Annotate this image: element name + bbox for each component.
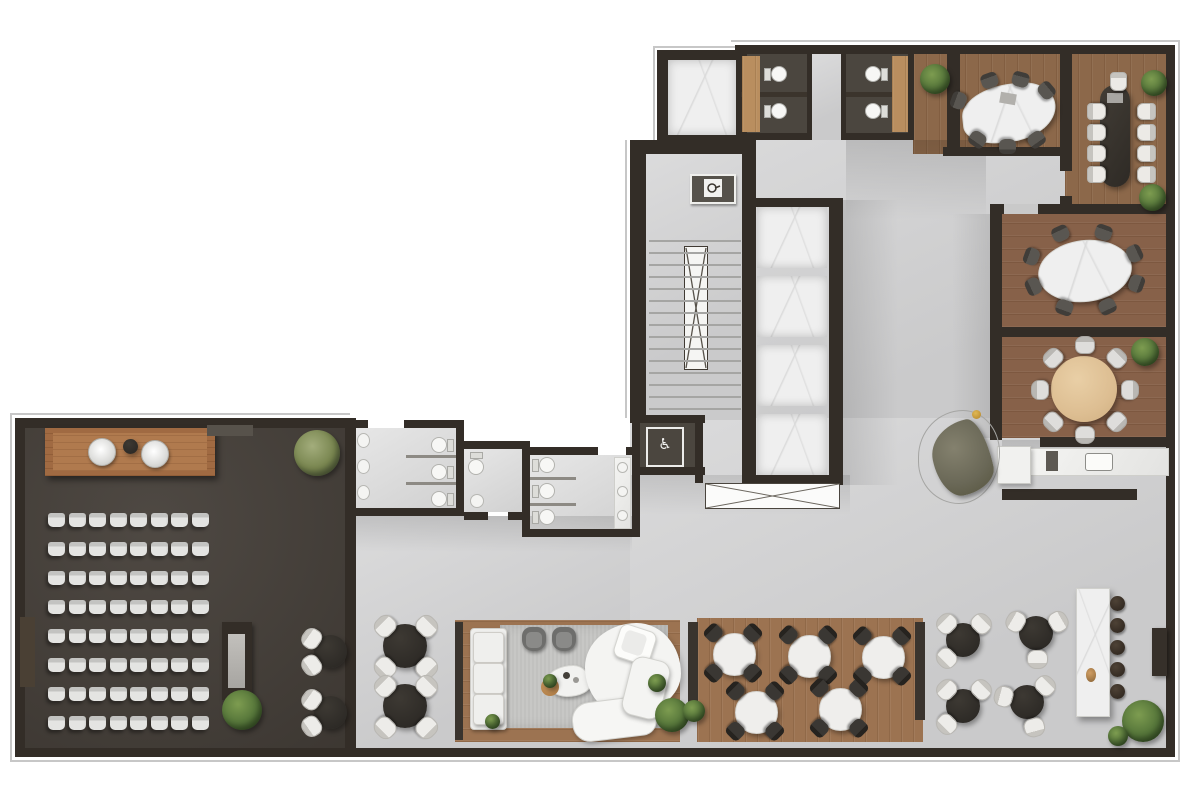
meeting-room-round-chair: [1031, 380, 1049, 400]
stair-tread: [649, 384, 741, 386]
boardroom-chair: [1137, 103, 1156, 120]
auditorium-seat: [171, 542, 188, 556]
stair-tread: [649, 264, 741, 266]
auditorium-seat: [48, 716, 65, 730]
auditorium-seat: [192, 542, 209, 556]
meeting-room-oval-chair: [1127, 273, 1147, 294]
auditorium-seat: [48, 687, 65, 701]
auditorium-seat: [110, 629, 127, 643]
auditorium-seat: [69, 629, 86, 643]
elevator-cab: [757, 276, 827, 337]
auditorium-seat: [89, 513, 106, 527]
auditorium-seat: [151, 629, 168, 643]
stair-tread: [649, 324, 741, 326]
floor-plan: ♿: [0, 0, 1200, 800]
auditorium-seat: [151, 513, 168, 527]
stair-tread: [649, 336, 741, 338]
meeting-room-1-chair: [1036, 79, 1058, 102]
auditorium-seat: [48, 629, 65, 643]
auditorium-seat: [151, 600, 168, 614]
auditorium-seat: [89, 542, 106, 556]
auditorium-seat: [130, 513, 147, 527]
auditorium-seat: [110, 571, 127, 585]
auditorium-seat: [171, 716, 188, 730]
auditorium-seat: [48, 542, 65, 556]
auditorium-seat: [130, 629, 147, 643]
meeting-room-round-chair: [1121, 380, 1139, 400]
auditorium-seat: [171, 658, 188, 672]
meeting-room-1-chair: [1026, 129, 1049, 151]
stair-tread: [649, 372, 741, 374]
auditorium-seat: [171, 571, 188, 585]
cafe-table-2-chair: [1027, 650, 1048, 669]
stair-tread: [649, 288, 741, 290]
elevator-cab: [757, 414, 827, 475]
auditorium-seat: [110, 513, 127, 527]
meeting-room-oval-chair: [1054, 298, 1075, 318]
stair-tread: [649, 348, 741, 350]
meeting-room-oval-chair: [1124, 242, 1145, 264]
stair-tread: [649, 408, 741, 410]
meeting-room-round-chair: [1075, 336, 1095, 354]
auditorium-seat: [110, 716, 127, 730]
meeting-room-oval-chair: [1093, 222, 1114, 242]
auditorium-seat: [110, 687, 127, 701]
boardroom-chair: [1087, 103, 1106, 120]
meeting-room-oval-chair: [1097, 296, 1119, 317]
auditorium-seat: [151, 658, 168, 672]
auditorium-seat: [69, 716, 86, 730]
auditorium-seat: [89, 687, 106, 701]
auditorium-seat: [151, 687, 168, 701]
elevator-cab: [757, 207, 827, 268]
auditorium-seat: [110, 658, 127, 672]
meeting-room-round-chair: [1075, 426, 1095, 444]
meeting-room-1-chair: [966, 129, 989, 151]
auditorium-seat: [48, 571, 65, 585]
auditorium-seat: [48, 658, 65, 672]
boardroom-chair: [1087, 166, 1106, 183]
bar-stool: [1110, 662, 1125, 677]
auditorium-seat: [151, 542, 168, 556]
meeting-room-1-chair: [1010, 70, 1030, 89]
auditorium-seat: [151, 716, 168, 730]
elevator-cab: [757, 345, 827, 406]
stair-tread: [649, 396, 741, 398]
auditorium-seat: [192, 658, 209, 672]
auditorium-seat: [89, 716, 106, 730]
auditorium-seat: [69, 542, 86, 556]
meeting-room-oval-chair: [1049, 223, 1071, 244]
stair-tread: [649, 252, 741, 254]
auditorium-seat: [192, 513, 209, 527]
meeting-room-round-chair: [1040, 408, 1067, 435]
auditorium-seat: [89, 658, 106, 672]
auditorium-seat: [110, 600, 127, 614]
auditorium-seat: [69, 571, 86, 585]
auditorium-seat: [130, 716, 147, 730]
stair-tread: [649, 360, 741, 362]
auditorium-seat: [69, 658, 86, 672]
boardroom-chair: [1137, 124, 1156, 141]
auditorium-seat: [171, 600, 188, 614]
boardroom-chair: [1137, 166, 1156, 183]
auditorium-seat: [130, 658, 147, 672]
bar-stool: [1110, 684, 1125, 699]
auditorium-seat: [89, 629, 106, 643]
auditorium-seat: [192, 687, 209, 701]
auditorium-seat: [110, 542, 127, 556]
stair-tread: [649, 300, 741, 302]
auditorium-seat: [69, 513, 86, 527]
meeting-room-round-chair: [1103, 408, 1130, 435]
stair-tread: [649, 276, 741, 278]
auditorium-seat: [89, 571, 106, 585]
auditorium-seat: [48, 600, 65, 614]
stair-tread: [649, 240, 741, 242]
auditorium-seat: [192, 600, 209, 614]
auditorium-seat: [130, 571, 147, 585]
auditorium-seat: [171, 687, 188, 701]
auditorium-seat: [69, 600, 86, 614]
auditorium-seat: [89, 600, 106, 614]
boardroom-chair: [1110, 72, 1127, 91]
bar-stool: [1110, 640, 1125, 655]
meeting-room-1-chair: [948, 90, 968, 111]
meeting-room-oval-chair: [1021, 246, 1041, 267]
meeting-room-oval-chair: [1023, 276, 1044, 298]
stair-tread: [649, 312, 741, 314]
meeting-room-round-chair: [1040, 345, 1067, 372]
meeting-room-1-chair: [999, 139, 1016, 154]
generated-furniture-layer: [0, 0, 1200, 800]
boardroom-chair: [1087, 145, 1106, 162]
bar-stool: [1110, 618, 1125, 633]
auditorium-seat: [192, 571, 209, 585]
auditorium-seat: [130, 542, 147, 556]
auditorium-seat: [192, 716, 209, 730]
auditorium-seat: [48, 513, 65, 527]
bar-stool: [1110, 596, 1125, 611]
auditorium-seat: [171, 629, 188, 643]
boardroom-chair: [1137, 145, 1156, 162]
auditorium-seat: [192, 629, 209, 643]
auditorium-seat: [69, 687, 86, 701]
auditorium-seat: [151, 571, 168, 585]
auditorium-seat: [171, 513, 188, 527]
auditorium-seat: [130, 687, 147, 701]
meeting-room-1-chair: [979, 70, 1000, 90]
meeting-room-round-chair: [1103, 345, 1130, 372]
auditorium-seat: [130, 600, 147, 614]
boardroom-chair: [1087, 124, 1106, 141]
